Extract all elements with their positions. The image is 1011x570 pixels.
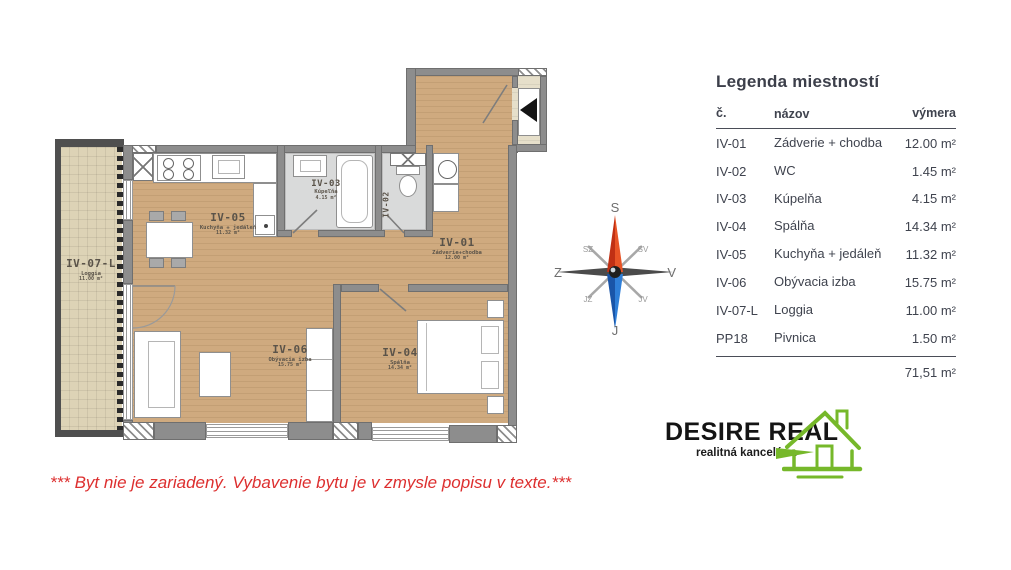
room-label-iv01: IV-01 Zádverie+chodba 12.00 m² bbox=[412, 237, 502, 262]
legend-total: 71,51 m² bbox=[716, 356, 956, 380]
legend-rows: IV-01 Zádverie + chodba 12.00 m² IV-02 W… bbox=[716, 129, 956, 352]
legend-room-name: Pivnica bbox=[774, 330, 886, 347]
compass-south-needle bbox=[615, 274, 623, 329]
compass-hub-highlight bbox=[611, 268, 616, 273]
legend-row: IV-02 WC 1.45 m² bbox=[716, 157, 956, 185]
house-icon bbox=[782, 406, 864, 482]
compass-label-se: JV bbox=[638, 295, 648, 304]
legend-row: PP18 Pivnica 1.50 m² bbox=[716, 324, 956, 352]
legend-room-no: IV-02 bbox=[716, 164, 774, 179]
legend-row: IV-01 Zádverie + chodba 12.00 m² bbox=[716, 129, 956, 157]
floor-plan: IV-05 Kuchyňa + jedáleň 11.32 m² IV-03 K… bbox=[0, 0, 560, 460]
compass-label-nw: SZ bbox=[583, 245, 593, 254]
entry-door-line bbox=[483, 85, 507, 123]
floorplan-page: IV-05 Kuchyňa + jedáleň 11.32 m² IV-03 K… bbox=[0, 0, 1011, 570]
compass-label-e: V bbox=[667, 265, 676, 280]
legend-room-no: IV-01 bbox=[716, 136, 774, 151]
legend-room-no: IV-04 bbox=[716, 219, 774, 234]
compass-label-sw: JZ bbox=[584, 295, 593, 304]
legend-room-no: IV-06 bbox=[716, 275, 774, 290]
legend-col-no: č. bbox=[716, 106, 774, 122]
legend-row: IV-04 Spálňa 14.34 m² bbox=[716, 213, 956, 241]
legend-panel: Legenda miestností č. názov výmera IV-01… bbox=[716, 72, 956, 380]
compass-west-blade bbox=[557, 268, 612, 277]
legend-room-area: 4.15 m² bbox=[886, 191, 956, 206]
legend-room-name: Kuchyňa + jedáleň bbox=[774, 246, 886, 263]
legend-row: IV-05 Kuchyňa + jedáleň 11.32 m² bbox=[716, 241, 956, 269]
room-label-iv06: IV-06 Obývacia izba 15.75 m² bbox=[245, 344, 335, 369]
legend-room-no: IV-07-L bbox=[716, 303, 774, 318]
legend-room-no: IV-03 bbox=[716, 191, 774, 206]
legend-room-name: Kúpelňa bbox=[774, 191, 886, 208]
room-label-iv02: IV-02 bbox=[381, 185, 390, 225]
legend-room-area: 11.32 m² bbox=[886, 247, 956, 262]
legend-header: č. názov výmera bbox=[716, 92, 956, 129]
room-label-iv03: IV-03 Kúpeľňa 4.15 m² bbox=[296, 179, 356, 201]
compass-north-needle bbox=[607, 215, 615, 272]
legend-room-name: Zádverie + chodba bbox=[774, 135, 886, 152]
legend-title: Legenda miestností bbox=[716, 72, 956, 92]
compass-north-needle bbox=[615, 215, 623, 272]
legend-col-area: výmera bbox=[886, 106, 956, 122]
legend-room-name: WC bbox=[774, 163, 886, 180]
legend-room-name: Loggia bbox=[774, 302, 886, 319]
legend-row: IV-06 Obývacia izba 15.75 m² bbox=[716, 269, 956, 297]
room-label-iv04: IV-04 Spálňa 14.34 m² bbox=[355, 347, 445, 372]
legend-room-name: Spálňa bbox=[774, 218, 886, 235]
legend-col-name: názov bbox=[774, 106, 886, 122]
compass-hub bbox=[609, 266, 621, 278]
compass-rose: S J Z V SZ SV JZ JV bbox=[552, 200, 678, 336]
legend-room-name: Obývacia izba bbox=[774, 274, 886, 291]
agency-logo: DESIRE REAL realitná kancelária bbox=[650, 405, 880, 483]
bedroom-door-line bbox=[380, 289, 406, 311]
disclaimer-text: *** Byt nie je zariadený. Vybavenie bytu… bbox=[50, 473, 610, 493]
door-swing-overlay bbox=[0, 0, 560, 460]
legend-room-no: IV-05 bbox=[716, 247, 774, 262]
legend-room-area: 14.34 m² bbox=[886, 219, 956, 234]
balcony-door-arc bbox=[133, 286, 175, 328]
room-label-iv07: IV-07-L Loggia 11.00 m² bbox=[59, 258, 123, 283]
legend-room-area: 15.75 m² bbox=[886, 275, 956, 290]
compass-label-w: Z bbox=[554, 265, 562, 280]
bathroom-door-line bbox=[293, 210, 317, 233]
compass-label-ne: SV bbox=[638, 245, 649, 254]
legend-room-area: 1.50 m² bbox=[886, 331, 956, 346]
compass-east-blade bbox=[618, 268, 673, 277]
compass-label-n: S bbox=[611, 200, 620, 215]
room-label-iv05: IV-05 Kuchyňa + jedáleň 11.32 m² bbox=[183, 212, 273, 237]
legend-row: IV-07-L Loggia 11.00 m² bbox=[716, 297, 956, 325]
legend-room-no: PP18 bbox=[716, 331, 774, 346]
legend-room-area: 11.00 m² bbox=[886, 303, 956, 318]
compass-label-s: J bbox=[612, 323, 619, 336]
legend-room-area: 1.45 m² bbox=[886, 164, 956, 179]
legend-row: IV-03 Kúpelňa 4.15 m² bbox=[716, 185, 956, 213]
legend-room-area: 12.00 m² bbox=[886, 136, 956, 151]
compass-south-needle bbox=[607, 274, 615, 329]
